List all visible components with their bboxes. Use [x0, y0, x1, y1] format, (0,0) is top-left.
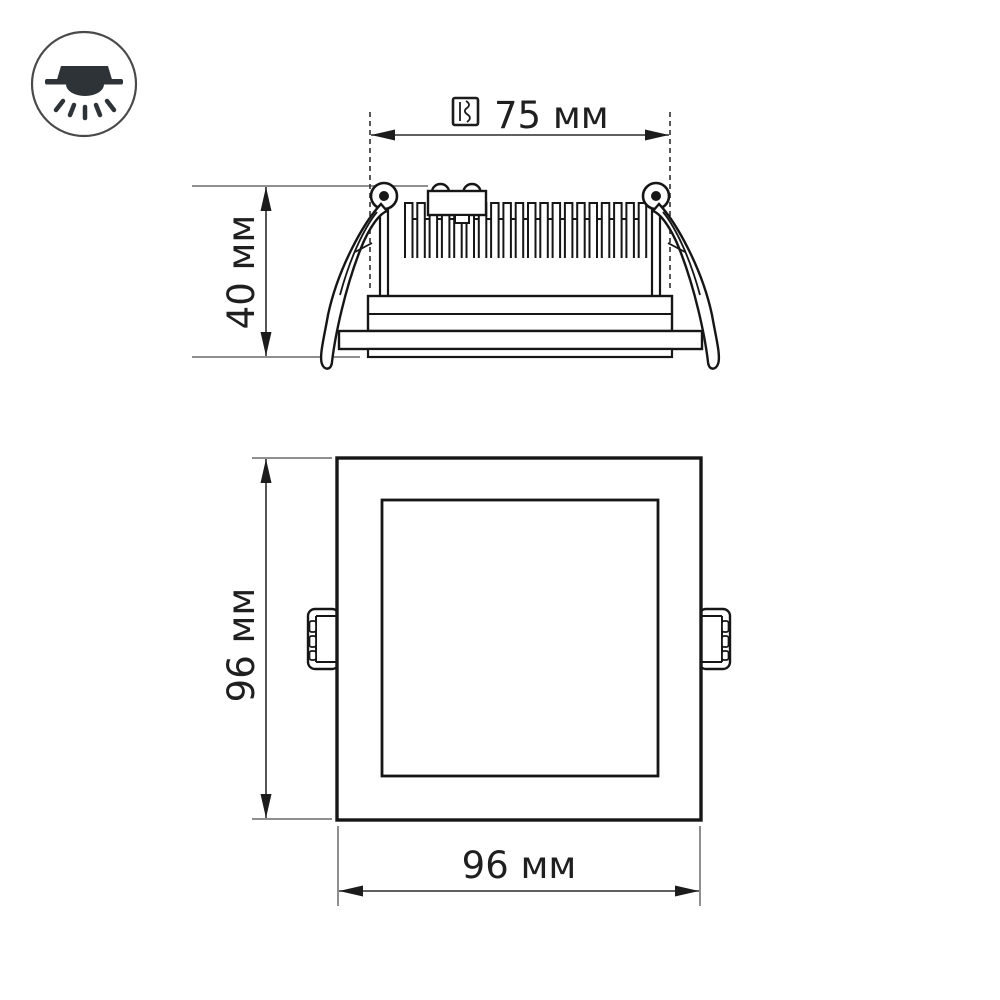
- glass-flange: [339, 331, 702, 349]
- terminal-block: [428, 191, 486, 215]
- front-view: [308, 458, 730, 820]
- diffuser-strip: [368, 349, 672, 357]
- front-clip-left-segment: [310, 621, 317, 632]
- front-clip-left-segment: [310, 636, 317, 647]
- front-clip-left: [308, 609, 339, 669]
- front-clip-right-segment: [722, 651, 729, 660]
- front-clip-right: [699, 609, 730, 669]
- arrow-height-top: [261, 459, 272, 483]
- dimension-drawing: 75 мм 40 мм 96 мм 96 мм: [0, 0, 1000, 1000]
- recessed-downlight-icon: [32, 32, 136, 136]
- clip-post-left: [380, 205, 388, 297]
- badge-can: [57, 66, 112, 80]
- arrow-width-right: [675, 886, 699, 897]
- side-view: [321, 183, 719, 369]
- arrow-cutout-right: [645, 130, 669, 141]
- clip-pivot-right-pin: [651, 191, 661, 201]
- badge-ceiling-bar: [45, 79, 123, 85]
- cutout-icon-wavy-cut: [465, 101, 470, 122]
- front-clip-right-segment: [722, 621, 729, 632]
- arrow-depth-top: [261, 187, 272, 211]
- dim-label-depth: 40 мм: [220, 215, 263, 330]
- front-clip-right-segment: [722, 636, 729, 647]
- arrow-height-bottom: [261, 794, 272, 818]
- cutout-hole-icon: [453, 98, 478, 125]
- front-clip-left-segment: [310, 651, 317, 660]
- arrow-width-left: [339, 886, 363, 897]
- dim-label-width: 96 мм: [462, 844, 577, 887]
- cutout-projection-lines: [370, 112, 670, 290]
- technical-drawing-page: 75 мм 40 мм 96 мм 96 мм: [0, 0, 1000, 1000]
- arrow-cutout-left: [371, 130, 395, 141]
- terminal-block-tab: [455, 215, 469, 223]
- arrow-depth-bottom: [261, 332, 272, 356]
- clip-post-right: [652, 205, 660, 297]
- clip-pivot-left-pin: [379, 191, 389, 201]
- panel-outer-frame: [337, 458, 701, 820]
- dim-label-height: 96 мм: [220, 588, 263, 703]
- dim-label-cutout: 75 мм: [494, 94, 609, 137]
